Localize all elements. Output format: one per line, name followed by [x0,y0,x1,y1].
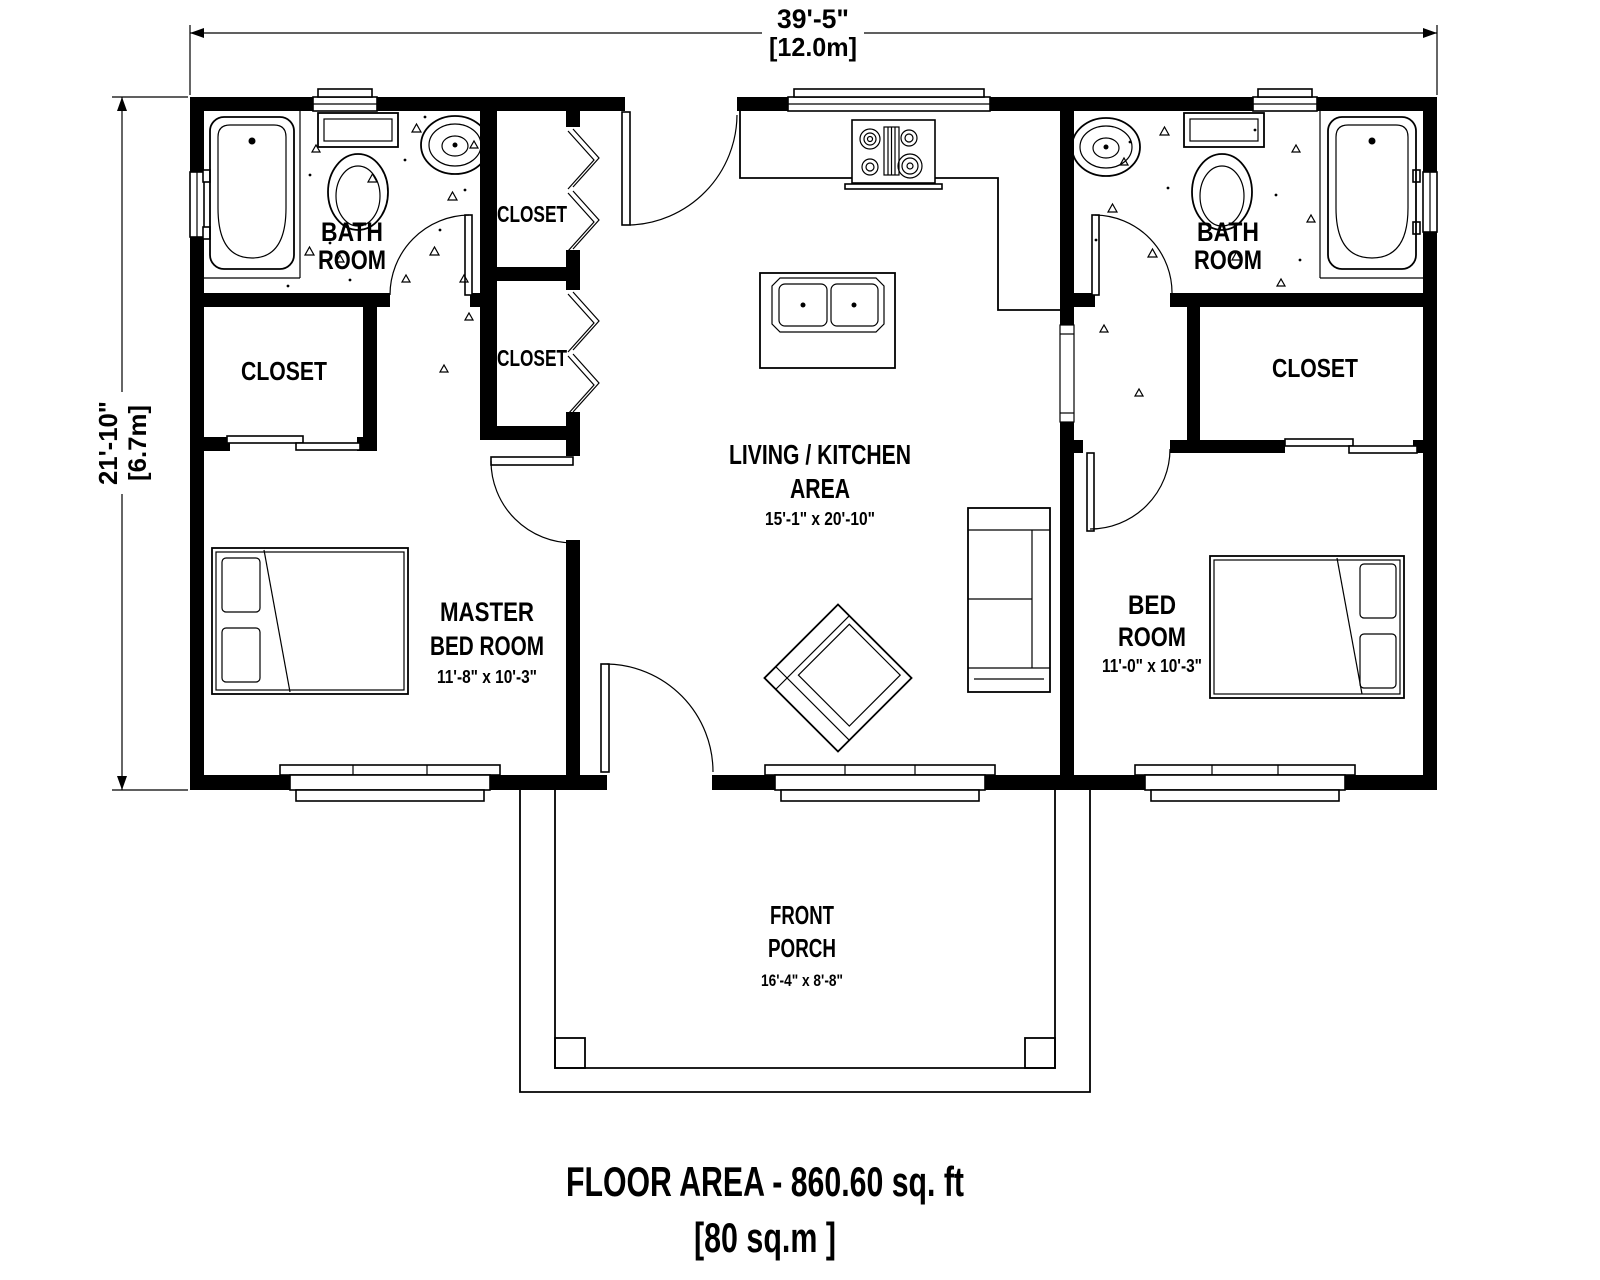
master-bed-icon [212,548,408,694]
bath-right-label-1: BATH [1197,217,1259,247]
master-bedroom-label-2: BED ROOM [430,631,544,661]
porch-dims: 16'-4" x 8'-8" [761,971,843,990]
bedroom-label-2: ROOM [1118,622,1186,652]
living-kitchen-label-2: AREA [790,473,850,504]
window-bath-right-icon [1253,89,1317,111]
closet-hall-upper-label: CLOSET [497,201,567,227]
toilet-left-icon [318,113,398,230]
stove-icon [845,120,942,189]
wall-closet-bedroom-left [1187,307,1200,440]
master-bedroom-door-icon [491,457,573,543]
entry-door-icon [622,112,737,225]
dim-width-meters: [12.0m] [769,32,857,62]
wall-closet-master-bottom [197,437,230,451]
window-master-bedroom-icon [280,765,500,801]
armchair-icon [764,604,911,751]
cased-opening-hall-icon [1060,325,1074,422]
sofa-icon [968,508,1050,692]
bedroom-label-1: BED [1128,590,1176,620]
dim-arrow-up-icon [117,97,127,111]
wall-hall-closet-bottom [497,426,566,440]
closet-bedroom-label: CLOSET [1272,353,1358,383]
bifold-door-lower-icon [568,292,599,414]
dim-arrow-right-icon [1423,28,1437,38]
porch-label-1: FRONT [770,900,834,930]
bathtub-right-icon [1320,111,1423,278]
bedroom-door-icon [1087,449,1170,531]
porch-post-left-icon [555,1038,585,1068]
living-kitchen-label-1: LIVING / KITCHEN [729,439,911,470]
window-left-wall-icon [190,170,210,239]
sink-left-icon [421,116,489,174]
bifold-door-upper-icon [568,129,599,251]
floor-plan-page: 39'-5" [12.0m] 21'-10" [6.7m] [0,0,1600,1280]
window-bedroom-icon [1135,765,1355,801]
bath-right-label-2: ROOM [1194,245,1262,275]
closet-hall-lower-label: CLOSET [497,345,567,371]
floor-area-title: FLOOR AREA - 860.60 sq. ft [566,1158,964,1205]
living-kitchen-dims: 15'-1" x 20'-10" [765,509,875,529]
floor-plan-drawing: 39'-5" [12.0m] 21'-10" [6.7m] [0,0,1600,1280]
bath-right-door-icon [1092,215,1172,295]
wall-hall-closet-divider [497,267,566,281]
footer: FLOOR AREA - 860.60 sq. ft [80 sq.m ] [566,1158,964,1261]
bath-left-label-2: ROOM [318,245,386,275]
bathtub-left-icon [204,111,300,278]
sink-right-icon [1072,118,1140,176]
floor-area-subtitle: [80 sq.m ] [694,1214,836,1261]
window-bath-left-icon [313,89,377,111]
porch-post-right-icon [1025,1038,1055,1068]
bedroom-bed-icon [1210,556,1404,698]
living-furniture [764,508,1050,752]
porch-door-icon [601,664,713,772]
window-living-icon [765,765,995,801]
kitchen-island-sink-icon [760,273,895,368]
master-bedroom-label-1: MASTER [440,597,534,627]
window-kitchen-icon [788,89,990,111]
sliding-door-master-closet-icon [227,436,360,450]
toilet-right-icon [1184,113,1264,230]
wall-bath-left-bottom [197,293,390,307]
bedroom-dims: 11'-0" x 10'-3" [1102,656,1202,676]
bath-left-label-1: BATH [321,217,383,247]
porch-label-2: PORCH [768,933,836,963]
kitchen-counter [740,111,852,178]
sliding-door-bedroom-closet-icon [1285,439,1417,453]
wall-bedroom-top [1060,440,1083,453]
dimension-left: 21'-10" [6.7m] [93,97,188,790]
dim-arrow-left-icon [190,28,204,38]
dimension-top: 39'-5" [12.0m] [190,3,1437,95]
dim-height-meters: [6.7m] [124,405,152,481]
wall-bath-right-bottom [1060,293,1095,307]
master-bedroom-dims: 11'-8" x 10'-3" [437,667,537,687]
wall-hall-closet-left [480,111,497,440]
wall-mid-left [566,111,580,127]
dim-width-feet: 39'-5" [777,4,849,34]
kitchen [740,111,1060,368]
wall-closet-master-right [363,307,377,437]
closet-master-label: CLOSET [241,356,327,386]
dim-arrow-down-icon [117,776,127,790]
dim-height-feet: 21'-10" [93,401,123,485]
